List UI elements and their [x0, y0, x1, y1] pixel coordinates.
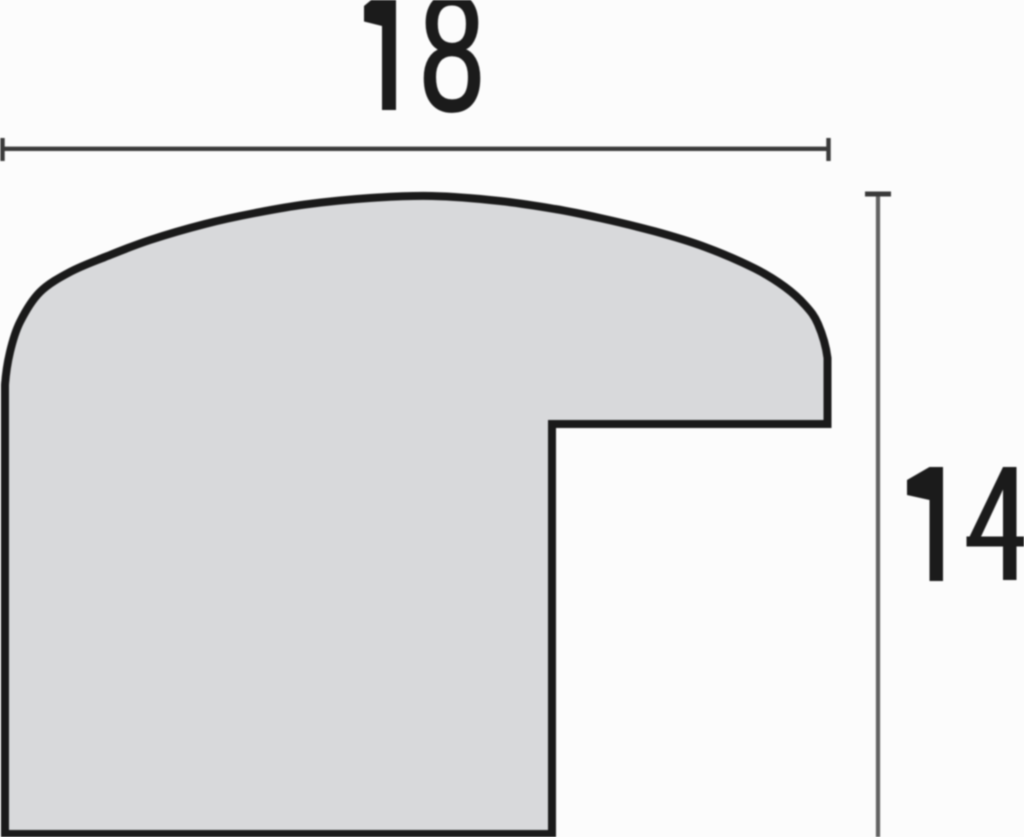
svg-text:8: 8 — [420, 0, 485, 146]
